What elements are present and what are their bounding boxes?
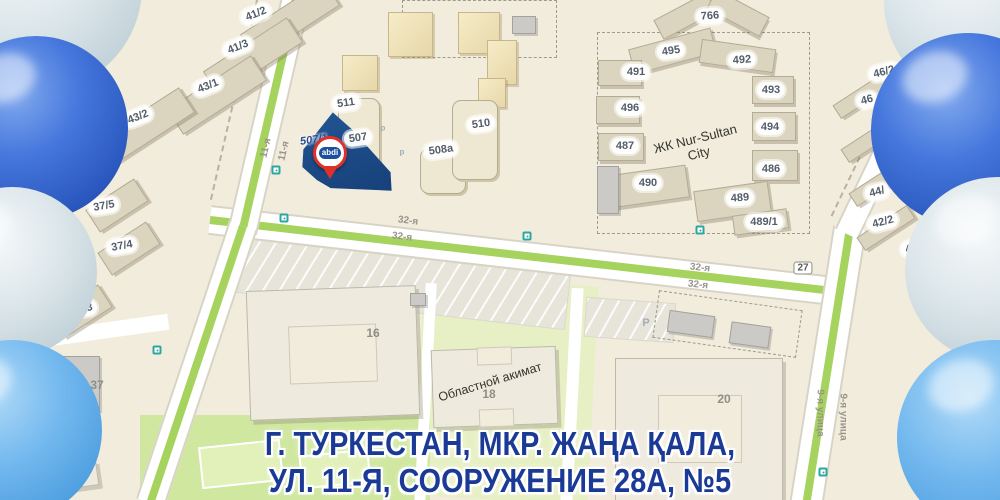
transit-stop-icon <box>523 232 532 241</box>
building-number-bubble: 511 <box>331 93 361 113</box>
building-number-bubble: 41/2 <box>238 1 273 28</box>
parking-mark: p <box>381 124 386 133</box>
building-number-bubble: 495 <box>656 41 686 61</box>
street-name-label: 32-я <box>689 261 710 274</box>
building-number-bubble: 492 <box>727 51 756 69</box>
transit-stop-icon <box>153 346 162 355</box>
building-number-bubble: 508а <box>423 140 459 161</box>
street-name-label: 32-я <box>397 214 418 227</box>
parking-mark: P <box>642 317 649 329</box>
street-name-label: 32-я <box>687 278 708 291</box>
building-number: 18 <box>482 387 495 401</box>
pin-circle: abdi <box>313 136 347 170</box>
building-number-bubble: 487 <box>611 138 639 154</box>
building-number-bubble: 496 <box>616 100 644 116</box>
building-number-bubble: 493 <box>757 82 785 98</box>
address-line2: УЛ. 11-Я, СООРУЖЕНИЕ 28А, №5 <box>20 463 980 500</box>
labels-layer: 41/241/343/143/237/537/437/3511507508а51… <box>0 0 1000 500</box>
building-number: 20 <box>717 392 730 406</box>
street-name-label: 11-я <box>258 137 273 159</box>
abdi-logo: abdi <box>319 147 341 159</box>
building-number: 16 <box>366 326 379 340</box>
transit-stop-icon <box>272 166 281 175</box>
map-screenshot: 507/1 abdi ЖК Nur-Sultan City Областной … <box>0 0 1000 500</box>
building-number-bubble: 766 <box>695 7 724 25</box>
building-number-bubble: 37/4 <box>105 235 139 256</box>
building-number-bubble: 41/3 <box>220 34 255 61</box>
transit-stop-icon <box>280 214 289 223</box>
building-number-bubble: 486 <box>757 161 785 177</box>
transit-stop-icon <box>696 226 705 235</box>
building-number-bubble: 489/1 <box>745 214 783 230</box>
address-line1: Г. ТУРКЕСТАН, МКР. ЖАҢА ҚАЛА, <box>20 426 980 463</box>
pin-tip <box>322 166 338 187</box>
address-caption: Г. ТУРКЕСТАН, МКР. ЖАҢА ҚАЛА, УЛ. 11-Я, … <box>20 426 980 500</box>
building-number-bubble: 43/1 <box>190 73 225 100</box>
building-number-bubble: 490 <box>634 175 662 191</box>
building-number-bubble: 489 <box>725 189 754 207</box>
building-number-bubble: 494 <box>756 119 784 135</box>
building-number-bubble: 42/2 <box>866 210 900 234</box>
building-number-bubble: 510 <box>466 114 496 134</box>
street-name-label: 32-я <box>391 230 412 243</box>
abdi-location-pin[interactable]: abdi <box>313 136 349 191</box>
street-name-label: 11-я <box>276 140 291 162</box>
building-number-bubble: 491 <box>622 64 650 80</box>
parking-mark: p <box>400 148 405 157</box>
